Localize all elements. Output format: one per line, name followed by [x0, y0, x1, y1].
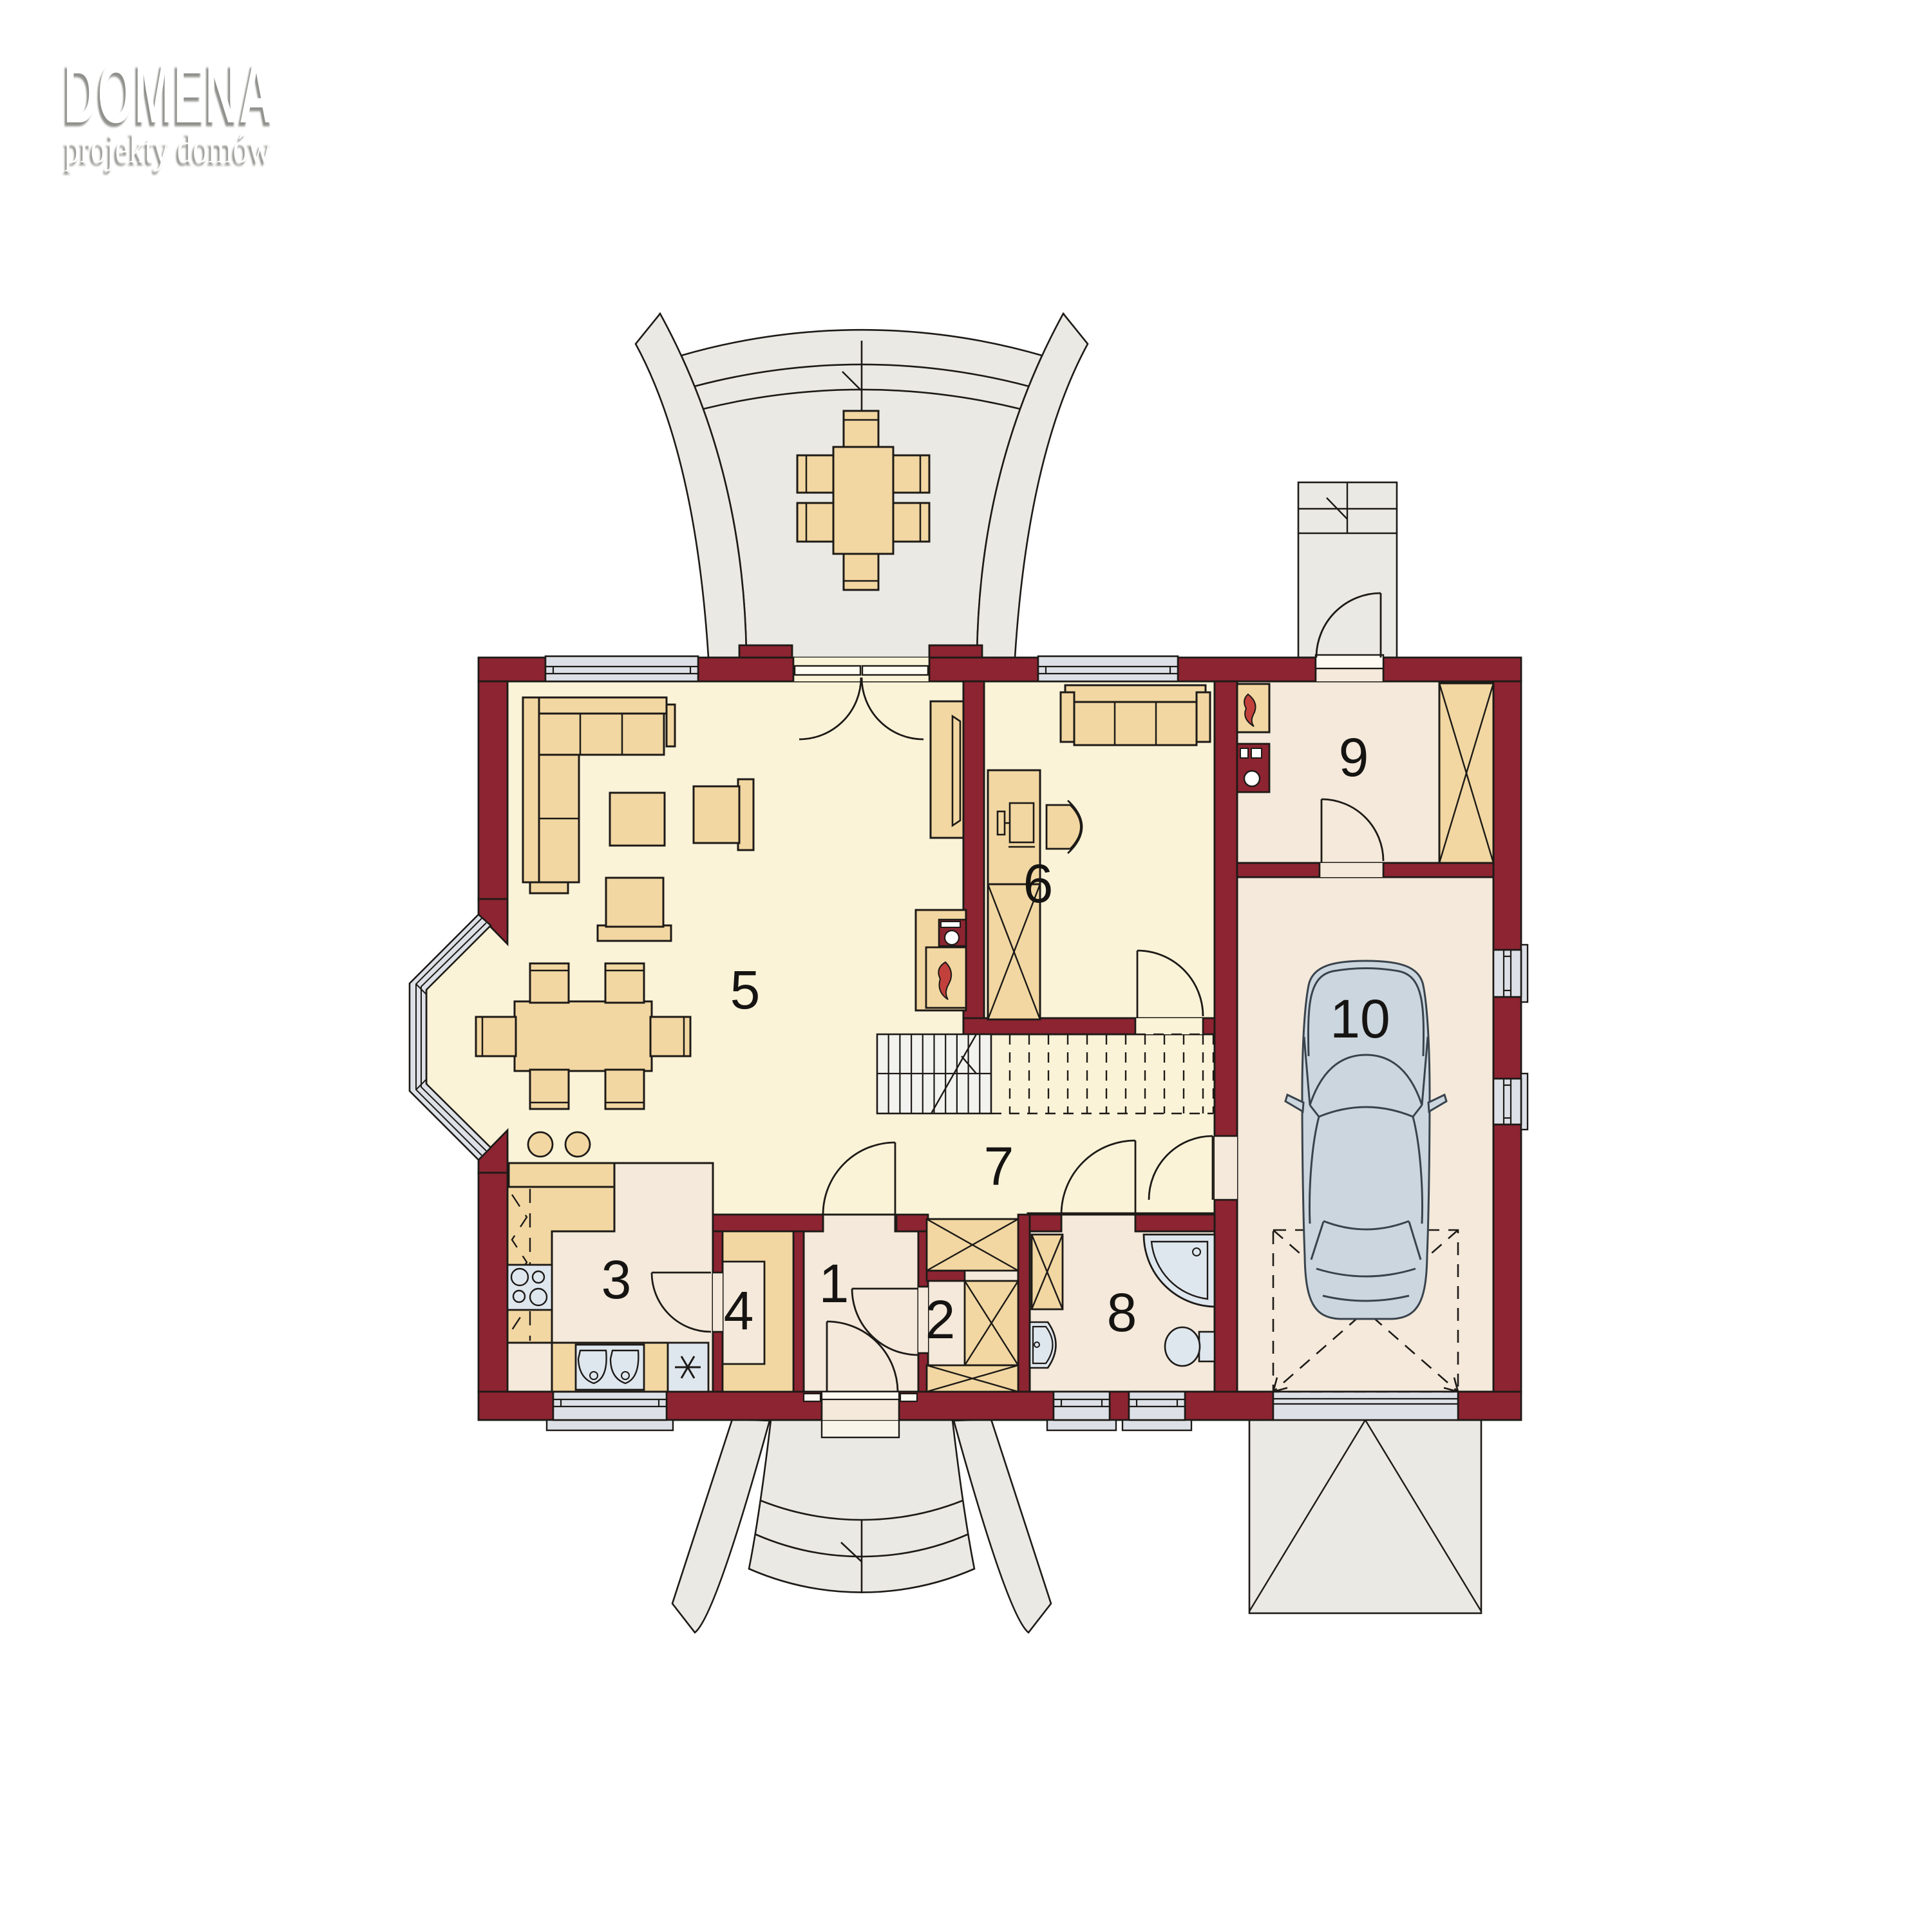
svg-text:1: 1 [819, 1253, 849, 1314]
svg-text:10: 10 [1330, 989, 1390, 1049]
svg-text:projekty domów: projekty domów [64, 124, 272, 172]
svg-text:4: 4 [724, 1280, 754, 1341]
svg-text:7: 7 [984, 1136, 1014, 1197]
svg-text:5: 5 [730, 960, 761, 1020]
svg-text:6: 6 [1023, 853, 1054, 914]
svg-text:3: 3 [601, 1249, 632, 1310]
svg-text:9: 9 [1339, 727, 1369, 788]
svg-text:8: 8 [1107, 1282, 1137, 1343]
svg-text:2: 2 [925, 1289, 956, 1350]
